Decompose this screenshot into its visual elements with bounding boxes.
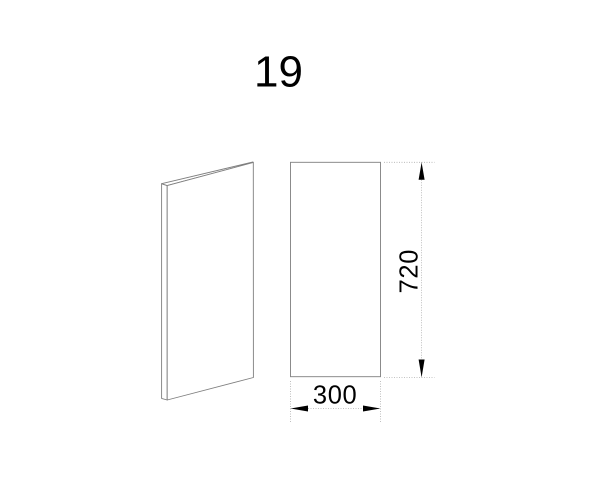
svg-text:19: 19 [254, 48, 303, 97]
svg-text:300: 300 [313, 381, 357, 409]
svg-text:720: 720 [396, 249, 424, 293]
